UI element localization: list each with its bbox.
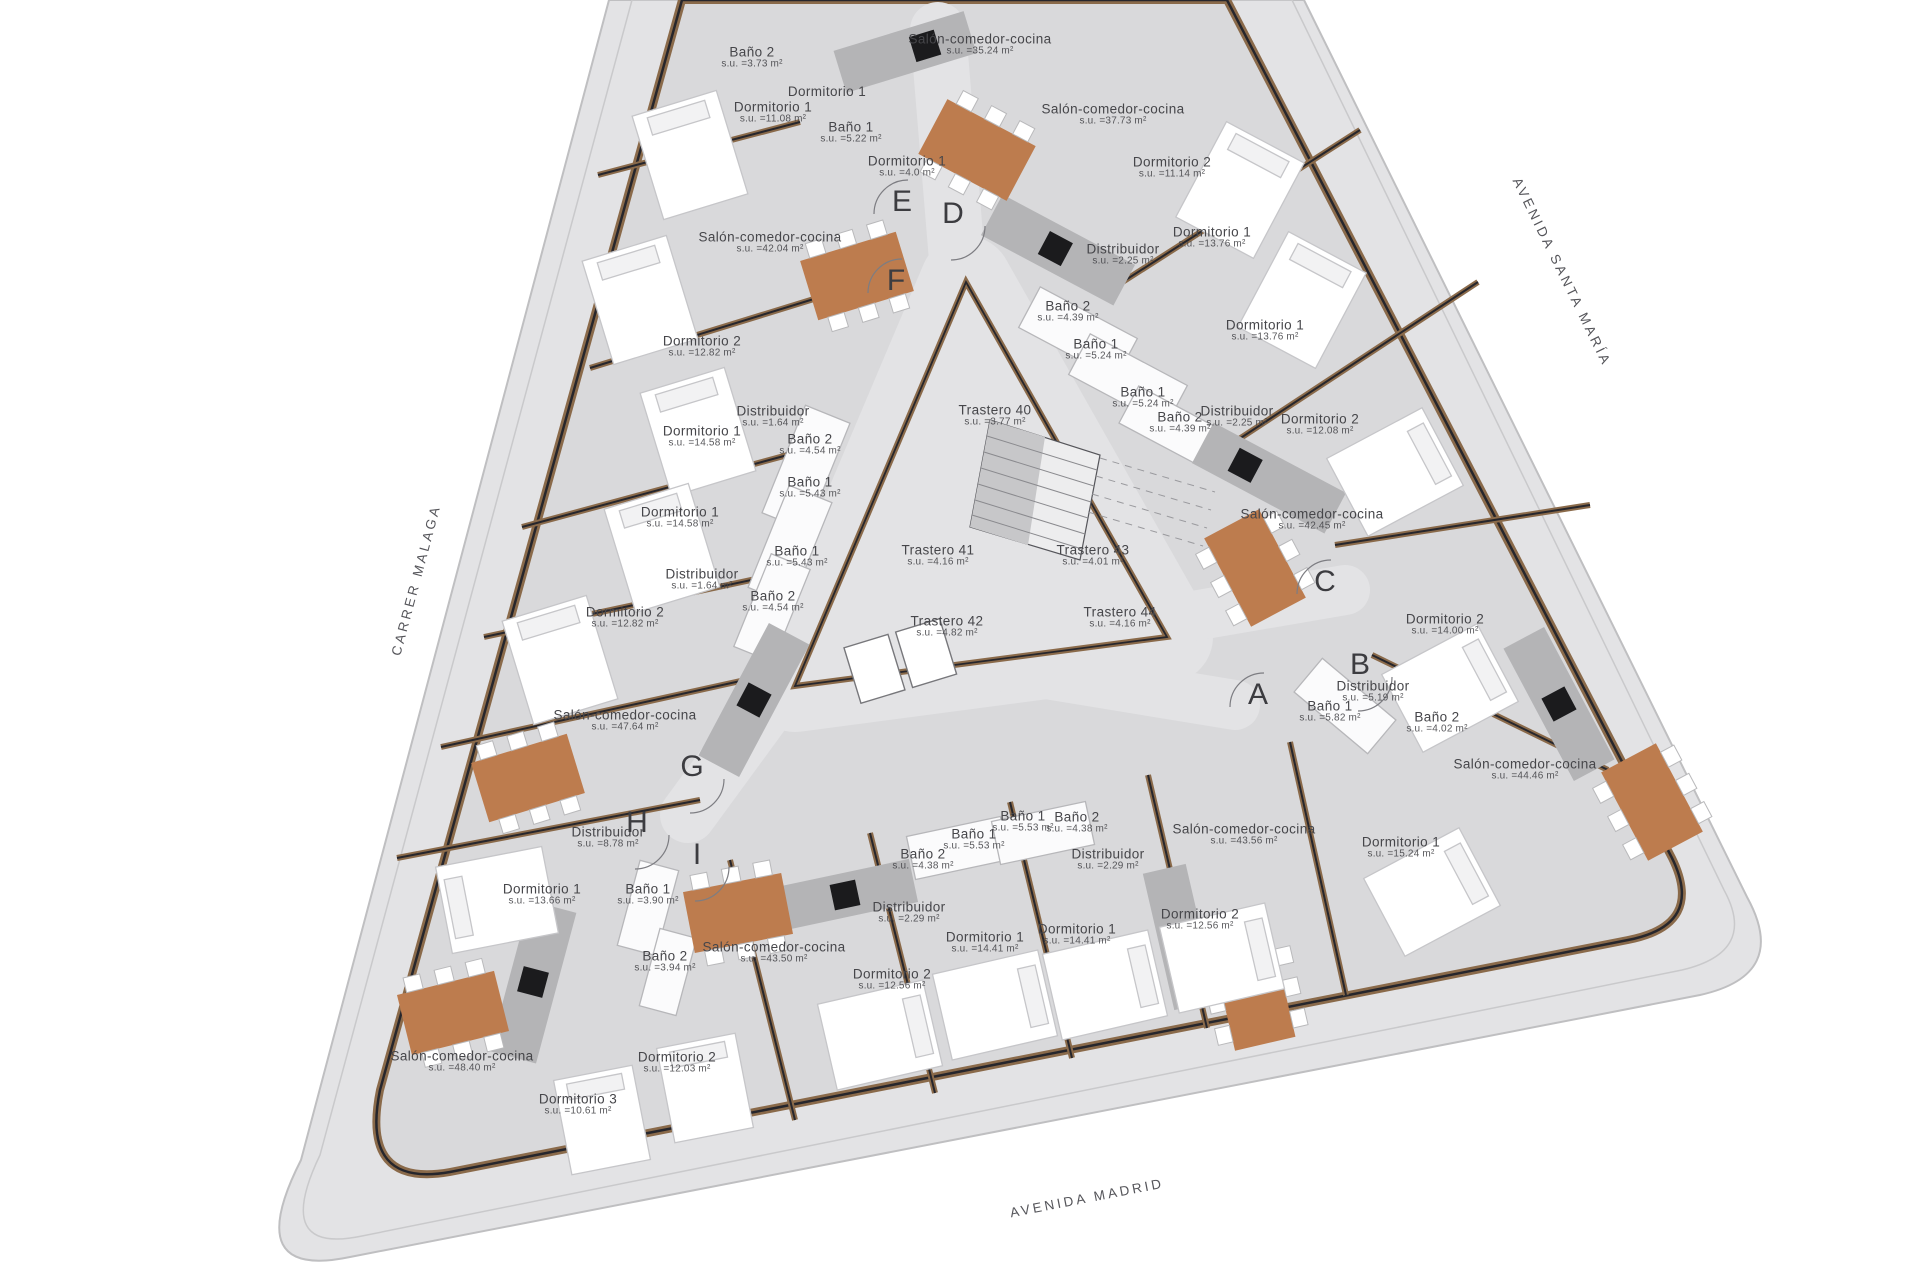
floorplan-drawing [0, 0, 1920, 1280]
floor-plan-canvas: Baño 2s.u. =3.73 m²Dormitorio 1Dormitori… [0, 0, 1920, 1280]
